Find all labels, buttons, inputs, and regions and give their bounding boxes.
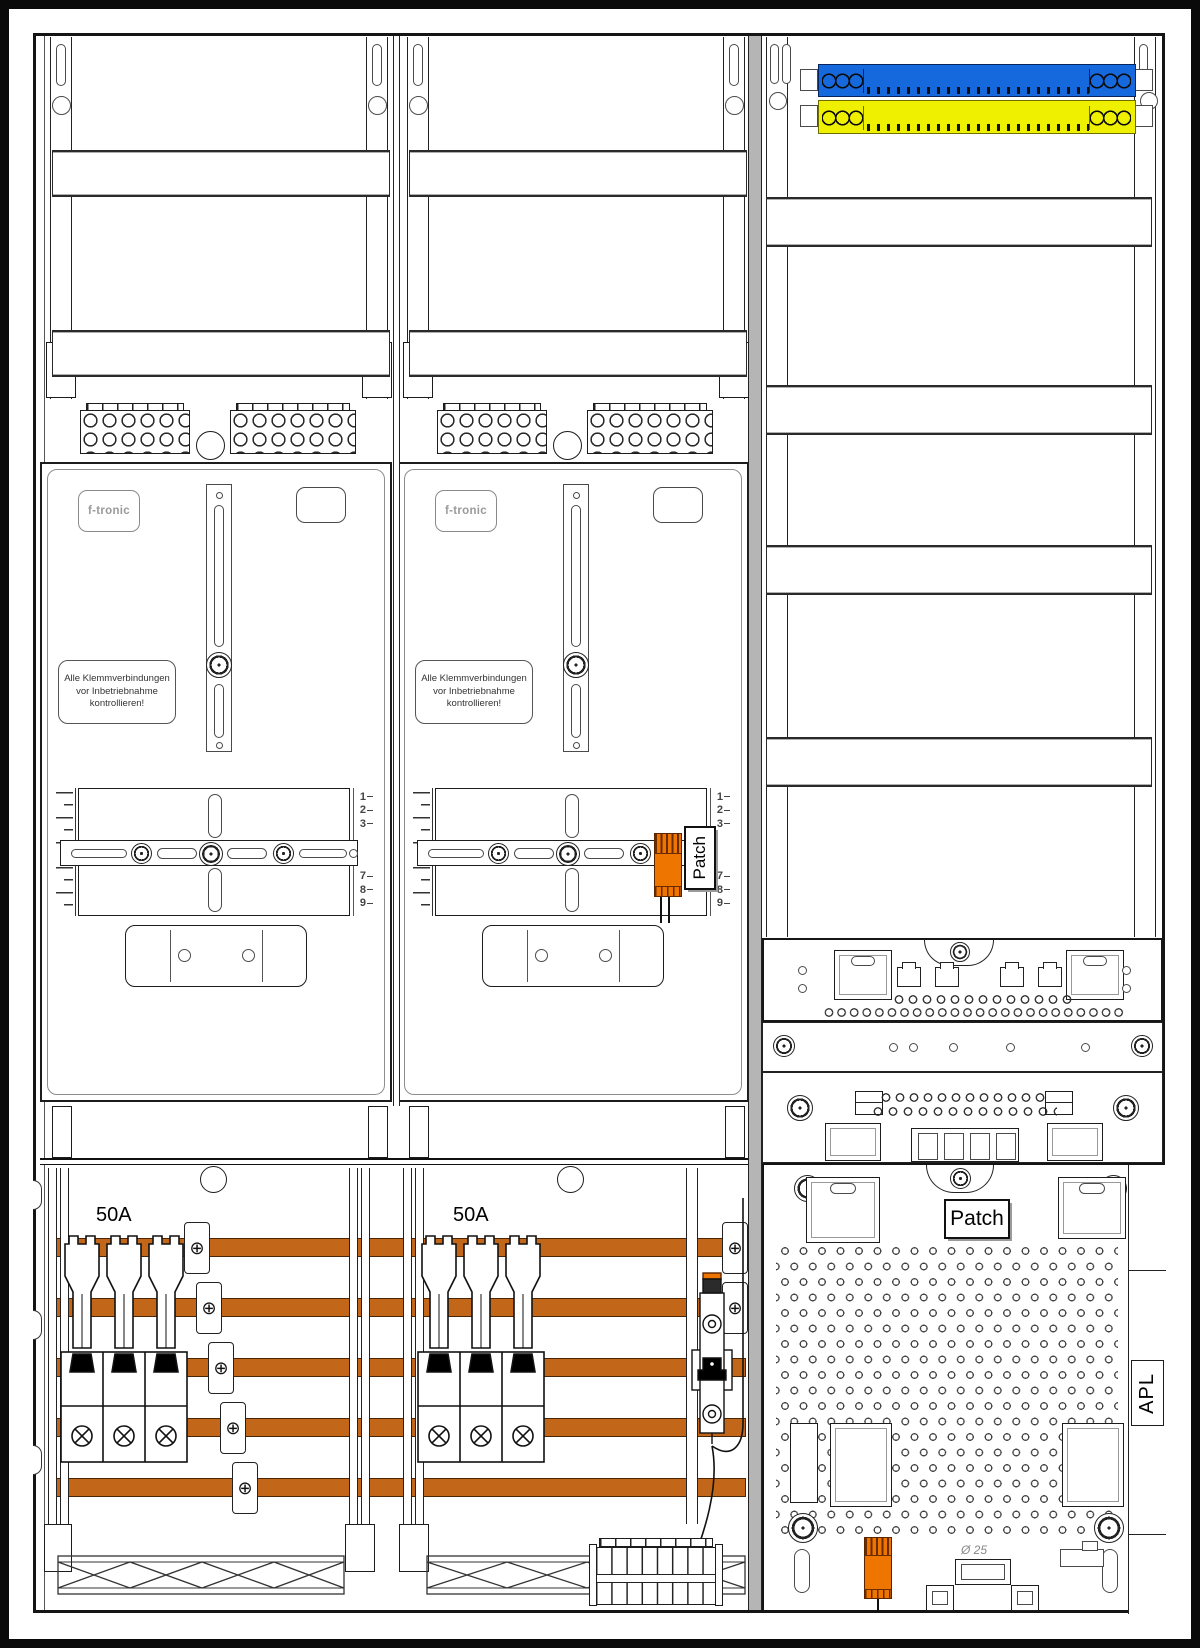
rail-end-holes [1089, 69, 1131, 93]
meter-base-plate [125, 925, 307, 987]
terminal-block [230, 410, 356, 454]
strip-hole [909, 1043, 918, 1052]
edge-slot [33, 1310, 42, 1340]
bracket-cutout [825, 1123, 881, 1161]
terminal-stripes [865, 1538, 891, 1556]
terminal-contacts [655, 886, 681, 896]
column-divider-2-3 [748, 36, 762, 1610]
rail-end-holes [822, 106, 864, 130]
grommet-diameter-label: Ø 25 [924, 1543, 1024, 1557]
module-port [918, 1133, 938, 1160]
rail-joint [1129, 1270, 1166, 1271]
screw-cross-icon: ⊕ [727, 1239, 742, 1257]
strip-hole [1081, 1043, 1090, 1052]
screw-cross-icon: ⊕ [213, 1359, 228, 1377]
cutout-slot [830, 1183, 856, 1194]
side-screw-hole [798, 966, 807, 975]
bar-screw [630, 843, 651, 864]
bottom-profile [349, 1168, 358, 1524]
rail-end-holes [822, 69, 864, 93]
rail-end-holes [1089, 106, 1131, 130]
col3-profile-right [1134, 37, 1156, 937]
busbar-clamp: ⊕ [722, 1222, 748, 1274]
din-rail-cover [766, 197, 1152, 247]
bracket-cutout [1047, 1123, 1103, 1161]
bar-screw [131, 843, 152, 864]
meter-cross-bar [60, 840, 358, 866]
patch-label-box: Patch [944, 1199, 1010, 1239]
profile-slot [729, 44, 739, 86]
profile-slot [372, 44, 382, 86]
meter-base-plate [482, 925, 664, 987]
panel-foot-stub [409, 1106, 429, 1158]
profile-hole [725, 96, 744, 115]
terminal-contacts [865, 1589, 891, 1598]
profile-hole [368, 96, 387, 115]
slide-bar-hole [216, 742, 223, 749]
bar-center-screw [556, 842, 580, 866]
bar-center-screw [199, 842, 223, 866]
bar-slot [299, 849, 347, 858]
patch-wire [668, 897, 670, 923]
strip-hole [1006, 1043, 1015, 1052]
slide-bar-slot [571, 684, 581, 738]
slide-bar-hole [216, 492, 223, 499]
bar-screw [488, 843, 509, 864]
edge-slot [33, 1180, 42, 1210]
multimedia-panel-top [762, 938, 1163, 1022]
din-rail-cover [766, 737, 1152, 787]
profile-slot [56, 44, 66, 86]
side-piece [790, 1423, 818, 1503]
bar-slot [71, 849, 127, 858]
module-port [996, 1133, 1016, 1160]
double-knockout [855, 1091, 883, 1115]
perforated-strip [762, 1072, 1163, 1163]
plate-line [619, 930, 620, 982]
bar-clip [1135, 69, 1153, 91]
meter-cabinet-drawing: f-tronic Alle Klemmverbindungen vor Inbe… [0, 0, 1200, 1648]
blank-badge [653, 487, 703, 523]
patch-label: Patch [950, 1207, 1004, 1231]
din-rail-cover [52, 330, 390, 377]
bar-screw [273, 843, 294, 864]
terminal-strip [595, 1538, 717, 1610]
profile-foot [345, 1524, 375, 1572]
corner-screw [1094, 1513, 1124, 1543]
patch-label-box-vertical: Patch [684, 826, 716, 890]
cutout-slot [1079, 1183, 1105, 1194]
orange-terminal-component [864, 1537, 892, 1599]
rj45-port [1000, 967, 1024, 987]
brand-label: f-tronic [445, 505, 487, 517]
pe-terminal-rail-yellow [818, 100, 1136, 134]
profile-hole [52, 96, 71, 115]
scale-number: 3 [360, 817, 373, 831]
hole-row [822, 1008, 1124, 1017]
scale-number: 7 [717, 870, 730, 884]
component-wire [877, 1599, 879, 1612]
din-rail-cover [409, 150, 747, 197]
strip-end-plate [715, 1544, 723, 1606]
scale-number: 1 [717, 790, 730, 804]
breaker-3pole-50a [58, 1230, 190, 1466]
cutout-slot [851, 956, 875, 966]
apl-label-box: APL [1131, 1360, 1164, 1426]
terminal-strip-tabs [599, 1538, 713, 1547]
side-screw-hole [1122, 984, 1131, 993]
cover-knockout [557, 1166, 584, 1193]
slide-bar-screw [563, 652, 589, 678]
brand-label: f-tronic [88, 505, 130, 517]
hole-row [892, 995, 1074, 1004]
bar-slot [227, 848, 267, 859]
grommet-inner [961, 1564, 1005, 1580]
col3-profile-left [766, 37, 788, 937]
breaker-rating-1: 50A [96, 1204, 132, 1227]
sls-device-1pole [690, 1272, 734, 1450]
scale-number: 9 [717, 897, 730, 911]
apl-label: APL [1136, 1373, 1159, 1414]
slide-bar-hole [573, 742, 580, 749]
plate-hole [242, 949, 255, 962]
scale-number: 8 [717, 883, 730, 897]
bottom-profile [48, 1168, 57, 1524]
breaker-rating-2: 50A [453, 1204, 489, 1227]
port-inner [932, 1591, 948, 1605]
profile-hole [409, 96, 428, 115]
port-group [911, 1128, 1019, 1162]
bottom-profile [403, 1168, 412, 1524]
warning-text: Alle Klemmverbindungen vor Inbetriebnahm… [421, 673, 527, 711]
patch-terminal-orange [654, 833, 682, 897]
profile-slot [770, 44, 779, 84]
rail-contact-dashes [867, 87, 1089, 94]
mounting-strip [762, 1022, 1163, 1072]
scale-number: 3 [717, 817, 730, 831]
warning-label: Alle Klemmverbindungen vor Inbetriebnahm… [58, 660, 176, 724]
screw-cross-icon: ⊕ [189, 1239, 204, 1257]
rj45-port [935, 967, 959, 987]
screw-cross-icon: ⊕ [225, 1419, 240, 1437]
panel-foot-stub [52, 1106, 72, 1158]
patch-wire [660, 897, 662, 923]
side-screw-hole [798, 984, 807, 993]
plate-hole [535, 949, 548, 962]
terminal-block [80, 410, 190, 454]
din-rail-cover [52, 150, 390, 197]
hole-row [871, 1107, 1057, 1116]
brand-badge: f-tronic [78, 490, 140, 532]
stepped-bracket-tab [1082, 1541, 1098, 1551]
scale-number: 2 [360, 804, 373, 818]
screw-cross-icon: ⊕ [237, 1479, 252, 1497]
slide-bar-slot [214, 684, 224, 738]
corner-foot [794, 1549, 810, 1593]
double-knockout [1045, 1091, 1073, 1115]
strip-screw [1131, 1035, 1153, 1057]
strip-hole [949, 1043, 958, 1052]
din-rail-cover [766, 545, 1152, 595]
screw-cross-icon: ⊕ [201, 1299, 216, 1317]
slide-bar-hole [573, 492, 580, 499]
bottom-port [926, 1585, 954, 1611]
side-screw-hole [1122, 966, 1131, 975]
warning-label: Alle Klemmverbindungen vor Inbetriebnahm… [415, 660, 533, 724]
patch-label: Patch [690, 836, 710, 879]
scale-number: 7 [360, 870, 373, 884]
strip-end-plate [589, 1544, 597, 1606]
large-cutout [830, 1423, 892, 1507]
terminal-block [587, 410, 713, 454]
slide-bar-slot [571, 505, 581, 647]
panel-screw [950, 942, 970, 962]
bottom-port [1011, 1585, 1039, 1611]
terminal-strip-gap [597, 1574, 715, 1583]
terminal-row-screw-hole [553, 431, 582, 460]
bar-end-clip [349, 849, 358, 858]
stepped-bracket [1060, 1549, 1104, 1567]
scale-number: 8 [360, 883, 373, 897]
bar-slot [514, 848, 554, 859]
module-port [944, 1133, 964, 1160]
slide-bar-slot [214, 505, 224, 647]
large-cutout [1062, 1423, 1124, 1507]
bottom-cover-top-edge [40, 1158, 750, 1165]
scale-number: 1 [360, 790, 373, 804]
terminal-row-screw-hole [196, 431, 225, 460]
scale-number: 2 [717, 804, 730, 818]
busbar-clamp: ⊕ [220, 1402, 246, 1454]
strip-screw [773, 1035, 795, 1057]
bar-clip [800, 105, 818, 127]
breaker-3pole-50a [415, 1230, 547, 1466]
profile-slot [782, 44, 791, 84]
rj45-port [897, 967, 921, 987]
plate-hole [599, 949, 612, 962]
edge-slot [33, 1445, 42, 1475]
terminal-stripes [655, 834, 681, 854]
cable-grommet [955, 1559, 1011, 1585]
brand-badge: f-tronic [435, 490, 497, 532]
corner-foot [1102, 1549, 1118, 1593]
bottom-truss-rail [56, 1548, 346, 1602]
scale-number: 9 [360, 897, 373, 911]
strip-hole [889, 1043, 898, 1052]
column-divider-1-2 [393, 36, 400, 1106]
bottom-profile [361, 1168, 370, 1524]
strip-screw [787, 1095, 813, 1121]
corner-screw [788, 1513, 818, 1543]
panel-screw [950, 1168, 971, 1189]
bar-slot [157, 848, 197, 859]
cover-knockout [200, 1166, 227, 1193]
multimedia-panel-bottom: Patch Ø 25 APL [762, 1163, 1163, 1612]
profile-hole [769, 92, 787, 110]
busbar-clamp: ⊕ [208, 1342, 234, 1394]
bar-slot [584, 848, 624, 859]
module-port [970, 1133, 990, 1160]
neutral-terminal-rail-blue [818, 64, 1136, 97]
plate-hole [178, 949, 191, 962]
right-mount-rail: APL [1128, 1165, 1165, 1614]
din-rail-cover [766, 385, 1152, 435]
warning-text: Alle Klemmverbindungen vor Inbetriebnahm… [64, 673, 170, 711]
panel-foot-stub [368, 1106, 388, 1158]
blank-badge [296, 487, 346, 523]
vertical-slot [565, 868, 579, 912]
busbar-PE [56, 1478, 746, 1497]
slide-bar-screw [206, 652, 232, 678]
port-inner [1017, 1591, 1033, 1605]
vertical-slot [565, 794, 579, 838]
plate-line [262, 930, 263, 982]
bar-clip [800, 69, 818, 91]
din-rail-cover [409, 330, 747, 377]
plate-line [527, 930, 528, 982]
bar-clip [1135, 105, 1153, 127]
vertical-slot [208, 794, 222, 838]
cutout-slot [1083, 956, 1107, 966]
bar-slot [428, 849, 484, 858]
plate-line [170, 930, 171, 982]
busbar-clamp: ⊕ [232, 1462, 258, 1514]
panel-foot-stub [725, 1106, 745, 1158]
rj45-port [1038, 967, 1062, 987]
rail-contact-dashes [867, 124, 1089, 131]
busbar-clamp: ⊕ [196, 1282, 222, 1334]
vertical-slot [208, 868, 222, 912]
terminal-block [437, 410, 547, 454]
strip-screw [1113, 1095, 1139, 1121]
profile-slot [413, 44, 423, 86]
rail-joint [1129, 1534, 1166, 1535]
hole-row [879, 1093, 1049, 1102]
